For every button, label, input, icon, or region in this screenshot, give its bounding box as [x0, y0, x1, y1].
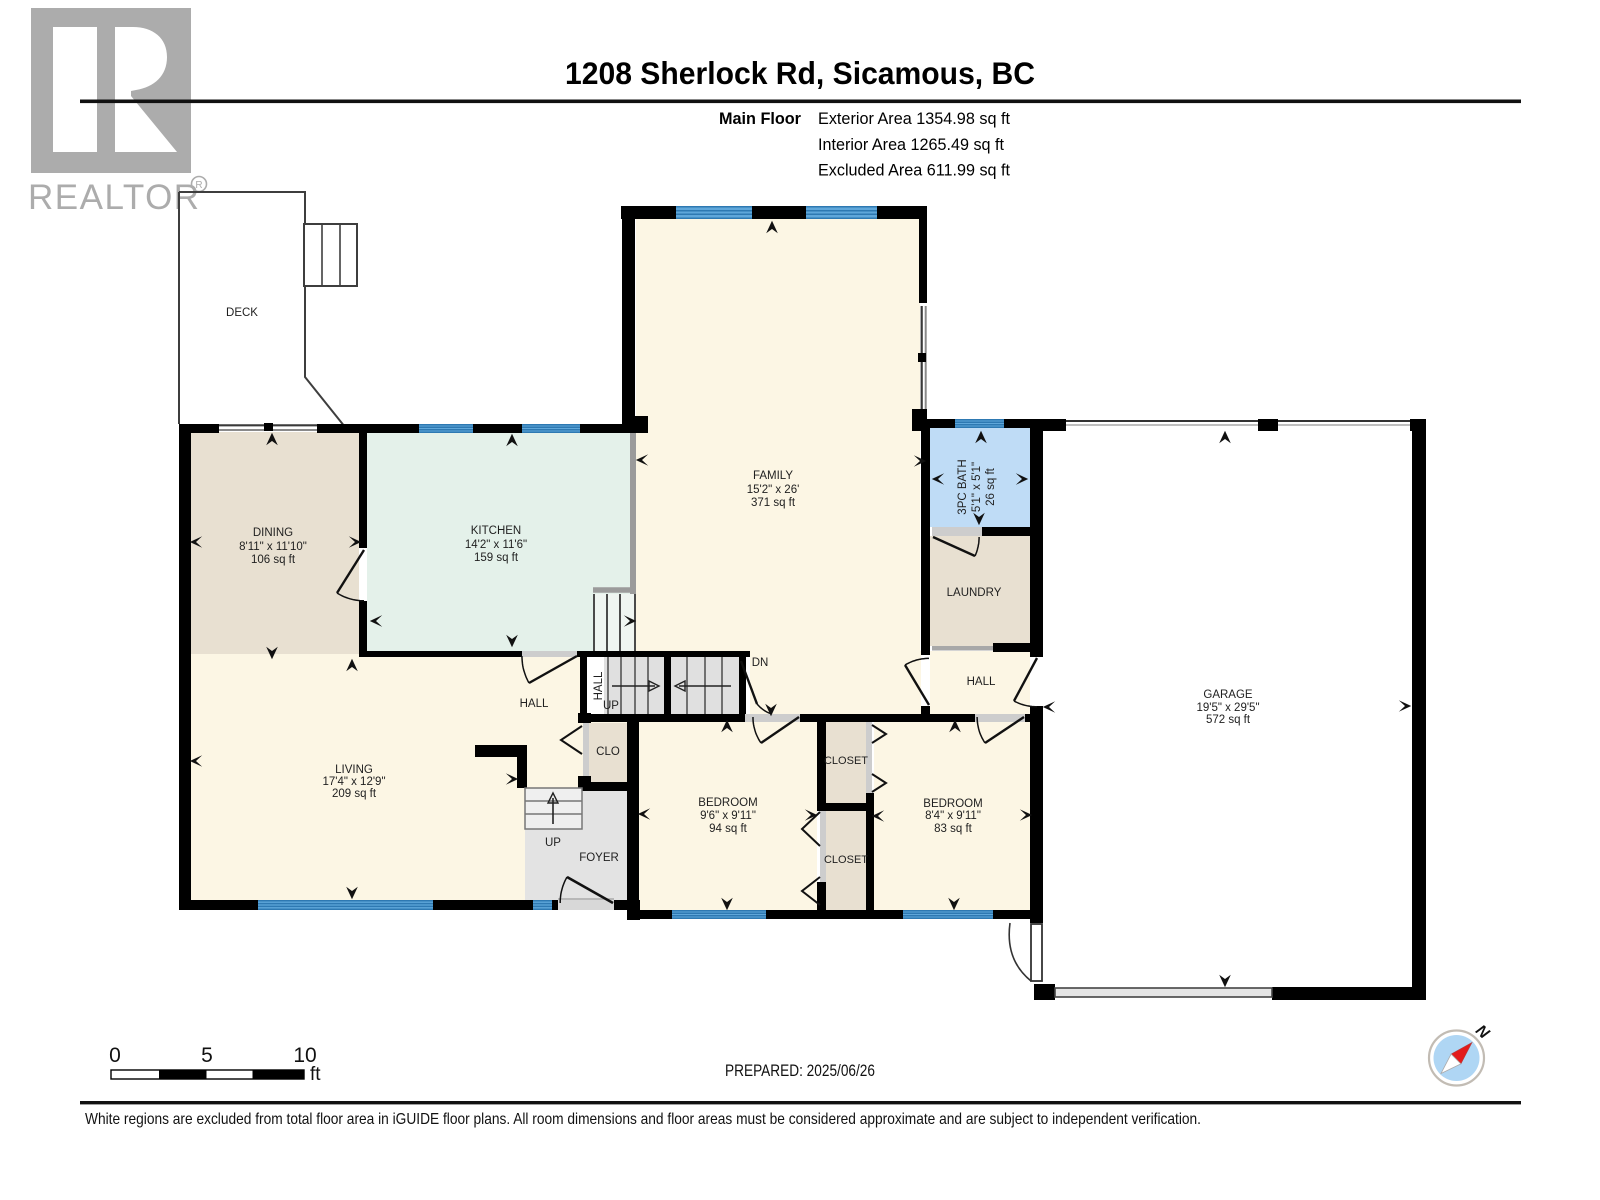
- svg-text:FAMILY: FAMILY: [753, 470, 793, 482]
- svg-text:DINING: DINING: [253, 527, 293, 539]
- svg-text:DN: DN: [752, 657, 769, 669]
- svg-text:8'4" x 9'11": 8'4" x 9'11": [925, 810, 981, 822]
- svg-text:KITCHEN: KITCHEN: [471, 525, 521, 537]
- svg-text:HALL: HALL: [520, 698, 549, 710]
- svg-text:BEDROOM: BEDROOM: [698, 797, 757, 809]
- svg-text:CLO: CLO: [596, 746, 620, 758]
- svg-text:CLOSET: CLOSET: [824, 854, 868, 866]
- svg-text:LIVING: LIVING: [335, 764, 373, 776]
- svg-text:209 sq ft: 209 sq ft: [332, 788, 377, 800]
- svg-text:9'6" x 9'11": 9'6" x 9'11": [700, 810, 756, 822]
- svg-text:159 sq ft: 159 sq ft: [474, 552, 519, 564]
- svg-text:5'1" x 5'1": 5'1" x 5'1": [971, 462, 983, 512]
- svg-text:PREPARED: 2025/06/26: PREPARED: 2025/06/26: [725, 1062, 875, 1080]
- svg-text:ft: ft: [310, 1064, 321, 1085]
- svg-text:Excluded Area 611.99 sq ft: Excluded Area 611.99 sq ft: [818, 162, 1010, 180]
- svg-text:94 sq ft: 94 sq ft: [709, 823, 748, 835]
- svg-text:DECK: DECK: [226, 307, 258, 319]
- svg-text:19'5" x 29'5": 19'5" x 29'5": [1196, 702, 1259, 714]
- svg-text:Interior Area 1265.49 sq ft: Interior Area 1265.49 sq ft: [818, 136, 1004, 154]
- svg-text:17'4" x 12'9": 17'4" x 12'9": [322, 776, 385, 788]
- svg-text:White regions are excluded fro: White regions are excluded from total fl…: [85, 1111, 1201, 1128]
- svg-text:572 sq ft: 572 sq ft: [1206, 714, 1251, 726]
- svg-text:UP: UP: [603, 700, 619, 712]
- svg-text:371 sq ft: 371 sq ft: [751, 497, 796, 509]
- svg-text:1208 Sherlock Rd, Sicamous, BC: 1208 Sherlock Rd, Sicamous, BC: [565, 55, 1035, 91]
- svg-text:UP: UP: [545, 837, 561, 849]
- svg-text:CLOSET: CLOSET: [824, 755, 868, 767]
- svg-text:0: 0: [109, 1044, 121, 1067]
- svg-text:HALL: HALL: [967, 676, 996, 688]
- svg-text:5: 5: [201, 1044, 213, 1067]
- svg-text:15'2" x 26': 15'2" x 26': [747, 484, 800, 496]
- svg-text:Main Floor: Main Floor: [719, 109, 801, 128]
- svg-text:Exterior Area 1354.98 sq ft: Exterior Area 1354.98 sq ft: [818, 110, 1010, 128]
- svg-text:14'2" x 11'6": 14'2" x 11'6": [465, 539, 527, 551]
- svg-text:3PC BATH: 3PC BATH: [957, 459, 969, 514]
- svg-text:106 sq ft: 106 sq ft: [251, 554, 296, 566]
- svg-text:BEDROOM: BEDROOM: [923, 798, 982, 810]
- svg-text:LAUNDRY: LAUNDRY: [947, 587, 1002, 599]
- svg-text:26 sq ft: 26 sq ft: [985, 467, 997, 506]
- svg-text:GARAGE: GARAGE: [1203, 689, 1253, 701]
- svg-text:FOYER: FOYER: [579, 852, 619, 864]
- svg-text:R: R: [195, 180, 202, 191]
- svg-text:HALL: HALL: [593, 671, 605, 700]
- svg-text:8'11" x 11'10": 8'11" x 11'10": [239, 541, 307, 553]
- svg-text:83 sq ft: 83 sq ft: [934, 823, 973, 835]
- svg-text:REALTOR: REALTOR: [28, 178, 201, 217]
